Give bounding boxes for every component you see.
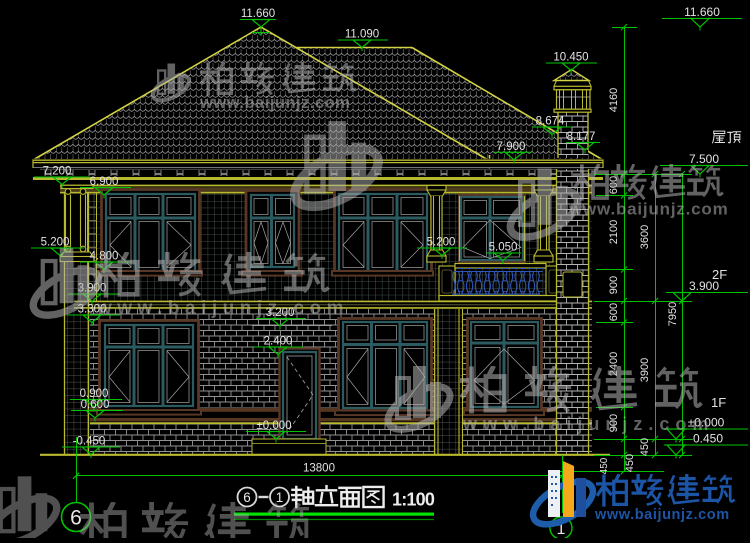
svg-text:6.900: 6.900 [90,176,119,188]
svg-text:7950: 7950 [667,302,679,326]
svg-text:±0.000: ±0.000 [256,420,291,432]
svg-text:6: 6 [243,490,251,505]
svg-text:1F: 1F [711,395,726,410]
svg-text:www.baijunjz.com: www.baijunjz.com [96,298,349,319]
svg-text:3600: 3600 [639,225,651,249]
svg-text:13800: 13800 [303,463,335,475]
svg-text:7.500: 7.500 [689,152,719,166]
svg-text:2100: 2100 [608,220,620,244]
svg-text:2.400: 2.400 [264,336,293,348]
svg-text:4160: 4160 [608,88,620,112]
svg-text:10.450: 10.450 [553,52,588,64]
svg-text:7.900: 7.900 [497,141,526,153]
svg-text:450: 450 [599,457,610,474]
svg-text:8.177: 8.177 [567,131,596,143]
svg-text:www.baijunjz.com: www.baijunjz.com [462,414,714,434]
svg-text:450: 450 [639,438,651,456]
svg-text:-0.450: -0.450 [73,436,106,448]
svg-text:900: 900 [608,276,620,294]
svg-text:0.600: 0.600 [81,399,110,411]
svg-text:11.660: 11.660 [241,8,275,20]
svg-text:3.900: 3.900 [689,279,719,293]
svg-text:www.baijunjz.com: www.baijunjz.com [594,507,730,523]
svg-text:450: 450 [624,454,636,472]
svg-text:3900: 3900 [639,358,651,382]
svg-text:www.baijunjz.com: www.baijunjz.com [568,200,729,219]
svg-text:7.200: 7.200 [43,166,72,178]
svg-text:5.200: 5.200 [427,237,456,249]
svg-text:1:100: 1:100 [392,490,435,510]
svg-text:11.660: 11.660 [684,5,720,19]
svg-text:5.200: 5.200 [41,237,70,249]
svg-text:1: 1 [276,490,284,505]
svg-text:5.050: 5.050 [489,242,518,254]
svg-text:www.baijunjz.com: www.baijunjz.com [199,94,350,112]
svg-text:600: 600 [608,303,620,321]
svg-text:8.674: 8.674 [536,116,565,128]
svg-text:11.090: 11.090 [345,29,379,41]
